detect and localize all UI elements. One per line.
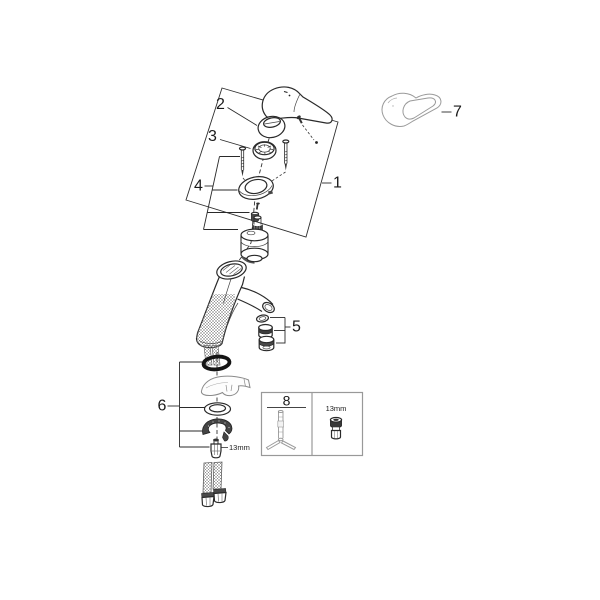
nut-size-label: 13mm: [229, 443, 250, 452]
spare-lever-handle: [382, 93, 451, 126]
spout-aerator-face: [261, 300, 276, 314]
screw-target-dot: [315, 141, 318, 144]
exploded-parts-diagram: 13mm: [0, 0, 600, 600]
tool-box: 13mm 8: [262, 393, 363, 456]
socket-size-label: 13mm: [326, 404, 347, 413]
small-screw: [256, 203, 260, 210]
callout-2: 2: [216, 96, 225, 113]
hose-nut-left: [202, 493, 215, 507]
callout-7: 7: [453, 104, 462, 121]
spout-bottom-edge: [238, 299, 263, 312]
aerator-washer: [256, 314, 269, 323]
hose-right: [213, 462, 222, 489]
aerator-set: [256, 314, 290, 351]
fastening-set: 13mm: [168, 352, 251, 458]
escutcheon-ring: [237, 174, 276, 203]
cartridge-ring: [253, 142, 276, 160]
hose-nut-right: [214, 489, 227, 503]
wedge-spacer: [201, 376, 250, 395]
connection-hoses: [202, 462, 227, 507]
leader-line-3: [220, 140, 251, 149]
spout-top-edge: [242, 288, 274, 305]
callout-5: 5: [292, 319, 301, 336]
diagram-canvas: 13mm: [0, 0, 600, 600]
cartridge: [241, 216, 268, 263]
hardware-nut: [211, 439, 221, 458]
callout-3: 3: [208, 128, 217, 145]
mounting-screw-right: [283, 140, 289, 171]
callout-1: 1: [333, 175, 342, 192]
hose-left: [203, 463, 212, 494]
mounting-screw-left: [240, 147, 246, 177]
mounting-washer: [205, 403, 231, 415]
callout-6: 6: [158, 398, 167, 415]
leader-line-2: [228, 108, 258, 126]
callout-8: 8: [283, 393, 291, 409]
aerator-housing: [259, 336, 274, 350]
callout-4: 4: [194, 178, 203, 195]
